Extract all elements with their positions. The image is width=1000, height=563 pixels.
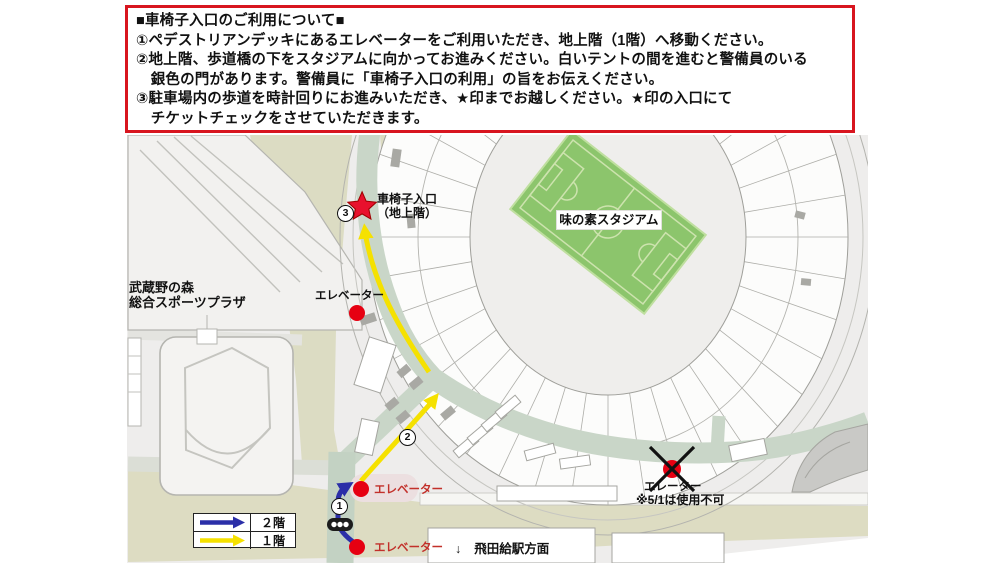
- legend-row-floor1: １階: [194, 532, 295, 549]
- arena-building: [160, 315, 293, 495]
- legend-floor2-label: ２階: [251, 514, 295, 531]
- station-direction-label: ↓飛田給駅方面: [455, 538, 549, 557]
- legend-floor1-label: １階: [251, 532, 295, 549]
- instruction-title: ■車椅子入口のご利用について■: [136, 12, 844, 32]
- instruction-step2-cont: 銀色の門があります。警備員に「車椅子入口の利用」の旨をお伝えください。: [136, 71, 844, 91]
- legend: ２階 １階: [193, 513, 296, 548]
- map-marker-3: 3: [337, 205, 354, 222]
- instruction-step2: ②地上階、歩道橋の下をスタジアムに向かってお進みください。白いテントの間を進むと…: [136, 51, 844, 71]
- legend-row-floor2: ２階: [194, 514, 295, 532]
- sports-plaza-label: 武蔵野の森 総合スポーツプラザ: [129, 280, 246, 310]
- map-marker-1: 1: [331, 498, 348, 515]
- wheelchair-entrance-guide-page: ■車椅子入口のご利用について■ ①ペデストリアンデッキにあるエレベーターをご利用…: [0, 0, 1000, 563]
- wheelchair-entrance-label-line1: 車椅子入口: [377, 192, 437, 206]
- elevator-closed-note: ※5/1は使用不可: [636, 491, 724, 508]
- station-direction-text: 飛田給駅方面: [474, 542, 549, 556]
- elevator-dot-mid: [353, 481, 369, 497]
- instruction-step3: ③駐車場内の歩道を時計回りにお進みいただき、★印までお越しください。★印の入口に…: [136, 90, 844, 110]
- map-marker-2: 2: [399, 429, 416, 446]
- elevator-label-top: エレベーター: [315, 287, 384, 303]
- sports-plaza-label-line1: 武蔵野の森: [129, 280, 246, 295]
- elevator-label-mid: エレベーター: [374, 481, 443, 497]
- elevator-dot-bottom: [349, 539, 365, 555]
- instruction-box: ■車椅子入口のご利用について■ ①ペデストリアンデッキにあるエレベーターをご利用…: [125, 5, 855, 133]
- elevator-dot-top: [349, 305, 365, 321]
- instruction-step1: ①ペデストリアンデッキにあるエレベーターをご利用いただき、地上階（1階）へ移動く…: [136, 32, 844, 52]
- down-arrow-icon: ↓: [455, 542, 461, 556]
- instruction-step3-cont: チケットチェックをさせていただきます。: [136, 110, 844, 130]
- stadium-name-label: 味の素スタジアム: [556, 210, 662, 230]
- legend-floor2-arrow-icon: [194, 514, 251, 531]
- elevator-label-bottom: エレベーター: [374, 539, 443, 555]
- wheelchair-entrance-label-line2: （地上階）: [377, 206, 437, 220]
- legend-floor1-arrow-icon: [194, 532, 251, 549]
- crossing-signal-icon: [327, 518, 353, 531]
- wheelchair-entrance-label: 車椅子入口 （地上階）: [377, 192, 437, 220]
- sports-plaza-label-line2: 総合スポーツプラザ: [129, 295, 246, 310]
